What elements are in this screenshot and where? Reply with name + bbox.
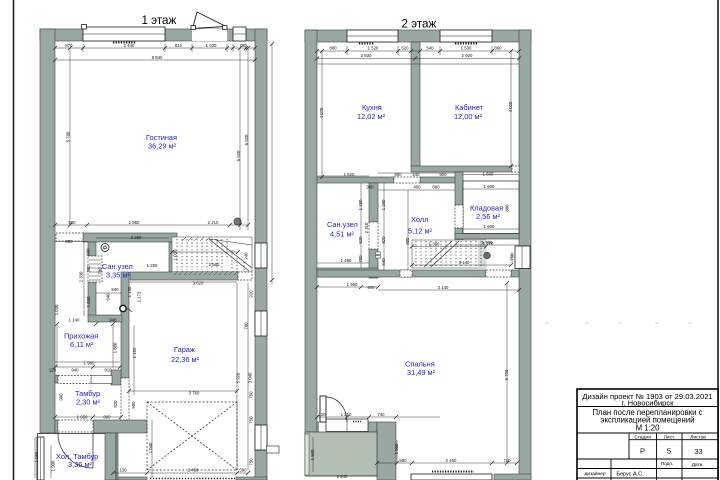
svg-text:2 930: 2 930 (361, 53, 372, 58)
svg-text:710: 710 (503, 458, 511, 463)
svg-text:1 030: 1 030 (86, 296, 91, 307)
svg-text:36,29 м²: 36,29 м² (148, 142, 177, 151)
svg-text:2 240: 2 240 (337, 474, 348, 479)
svg-text:820: 820 (381, 236, 386, 244)
svg-text:240: 240 (412, 172, 420, 177)
svg-text:1 250: 1 250 (147, 263, 158, 268)
svg-text:380: 380 (86, 265, 91, 273)
svg-text:Сан.узел: Сан.узел (327, 220, 358, 229)
svg-text:760: 760 (244, 322, 249, 330)
svg-text:820: 820 (358, 236, 363, 244)
svg-text:750: 750 (249, 391, 254, 399)
svg-text:6,11 м²: 6,11 м² (70, 340, 94, 349)
svg-text:3 620: 3 620 (193, 281, 204, 286)
svg-text:1 960: 1 960 (34, 451, 39, 462)
svg-text:2 460: 2 460 (446, 458, 457, 463)
svg-text:1 880: 1 880 (113, 342, 118, 353)
svg-text:900: 900 (439, 172, 447, 177)
svg-text:Берус А.С.: Берус А.С. (616, 472, 644, 478)
svg-text:1 770: 1 770 (483, 241, 494, 246)
svg-text:2 460: 2 460 (188, 468, 199, 473)
svg-text:540: 540 (426, 46, 434, 51)
svg-text:400: 400 (413, 185, 421, 190)
svg-text:800: 800 (505, 204, 510, 212)
svg-text:Кухня: Кухня (362, 103, 382, 112)
svg-text:640: 640 (381, 258, 386, 266)
svg-text:2,56 м²: 2,56 м² (476, 212, 501, 221)
svg-text:Подп.: Подп. (661, 461, 674, 467)
svg-text:3 140: 3 140 (459, 260, 470, 265)
svg-text:750: 750 (249, 458, 254, 466)
svg-text:2 330: 2 330 (79, 271, 84, 282)
svg-text:700: 700 (358, 255, 363, 263)
svg-text:900: 900 (131, 401, 136, 409)
svg-text:910: 910 (104, 368, 112, 373)
svg-text:4 070: 4 070 (319, 107, 324, 118)
svg-text:870: 870 (65, 43, 73, 48)
svg-text:1 920: 1 920 (344, 172, 355, 177)
svg-text:1 210: 1 210 (341, 412, 352, 417)
svg-text:3 760: 3 760 (189, 391, 200, 396)
svg-text:590: 590 (68, 220, 76, 225)
svg-text:1 500: 1 500 (394, 443, 399, 454)
svg-text:750: 750 (249, 416, 254, 424)
svg-text:1 150: 1 150 (127, 286, 132, 297)
svg-text:120: 120 (318, 412, 326, 417)
svg-text:1 600: 1 600 (484, 184, 495, 189)
svg-text:790: 790 (239, 43, 247, 48)
svg-text:3,36 м²: 3,36 м² (68, 460, 93, 469)
svg-text:940: 940 (109, 318, 117, 323)
svg-text:31,49 м²: 31,49 м² (407, 368, 436, 377)
svg-text:2 560: 2 560 (209, 262, 220, 267)
svg-text:880: 880 (329, 46, 337, 51)
svg-text:22,36 м²: 22,36 м² (171, 355, 200, 364)
svg-text:940: 940 (71, 368, 79, 373)
svg-text:1 030: 1 030 (54, 304, 59, 315)
svg-text:Холл: Холл (411, 215, 428, 224)
svg-text:2,30 м²: 2,30 м² (76, 398, 101, 407)
svg-text:2 960: 2 960 (129, 220, 140, 225)
svg-text:33: 33 (694, 447, 702, 456)
svg-text:дизайнер: дизайнер (584, 470, 605, 477)
svg-text:5 790: 5 790 (504, 369, 509, 380)
svg-text:3 140: 3 140 (438, 285, 449, 290)
svg-text:Дата: Дата (692, 462, 703, 468)
svg-text:2 192: 2 192 (132, 347, 137, 358)
svg-text:Кабинет: Кабинет (455, 103, 484, 112)
svg-text:810: 810 (175, 43, 183, 48)
svg-text:М 1:20: М 1:20 (636, 424, 660, 433)
svg-text:800: 800 (405, 237, 410, 245)
svg-text:1 040: 1 040 (148, 442, 153, 453)
svg-text:1 600: 1 600 (484, 224, 495, 229)
svg-text:580: 580 (399, 458, 407, 463)
svg-text:750: 750 (510, 253, 515, 261)
svg-text:6 920: 6 920 (236, 150, 241, 161)
svg-text:Лист: Лист (664, 435, 675, 441)
svg-text:1 960: 1 960 (347, 282, 358, 287)
svg-text:2 250: 2 250 (131, 235, 142, 240)
svg-text:2 920: 2 920 (462, 53, 473, 58)
svg-text:900: 900 (367, 285, 375, 290)
svg-text:1 173: 1 173 (137, 291, 142, 302)
svg-text:130: 130 (119, 468, 127, 473)
svg-text:5 920: 5 920 (236, 372, 241, 383)
svg-text:1 этаж: 1 этаж (142, 14, 177, 27)
svg-text:890: 890 (432, 185, 440, 190)
svg-text:5 940: 5 940 (152, 55, 163, 60)
svg-text:2 310: 2 310 (364, 222, 369, 233)
svg-text:1 960: 1 960 (84, 361, 95, 366)
svg-text:940: 940 (111, 287, 119, 292)
svg-text:120: 120 (49, 368, 57, 373)
svg-text:920: 920 (113, 400, 118, 408)
svg-text:900: 900 (59, 393, 64, 401)
svg-text:1 480: 1 480 (341, 258, 352, 263)
svg-text:520: 520 (401, 46, 409, 51)
svg-text:Стадия: Стадия (634, 435, 651, 441)
svg-text:1 600: 1 600 (483, 172, 494, 177)
svg-text:5 780: 5 780 (66, 131, 71, 142)
svg-text:2 210: 2 210 (208, 220, 219, 225)
svg-text:900: 900 (394, 172, 402, 177)
svg-text:Листов: Листов (690, 435, 706, 441)
svg-text:5,12 м²: 5,12 м² (408, 227, 433, 236)
svg-text:920: 920 (249, 290, 254, 298)
svg-text:240: 240 (244, 252, 249, 260)
svg-text:4,51 м²: 4,51 м² (330, 230, 355, 239)
svg-text:5: 5 (667, 447, 671, 456)
svg-text:1 280: 1 280 (381, 199, 386, 210)
svg-text:2 440: 2 440 (124, 43, 135, 48)
svg-text:1 900: 1 900 (51, 460, 56, 471)
svg-text:3 040: 3 040 (248, 372, 253, 383)
svg-text:12,02 м²: 12,02 м² (357, 112, 386, 121)
svg-text:590: 590 (239, 468, 247, 473)
svg-text:12,00 м²: 12,00 м² (454, 112, 483, 121)
svg-text:6 920: 6 920 (244, 134, 249, 145)
svg-text:640: 640 (106, 293, 111, 301)
svg-text:1 520: 1 520 (368, 46, 379, 51)
svg-text:3,35 м²: 3,35 м² (106, 271, 131, 280)
svg-text:Гараж: Гараж (174, 345, 195, 354)
svg-text:г. Новосибирск: г. Новосибирск (622, 399, 675, 408)
svg-text:1 280: 1 280 (358, 199, 363, 210)
svg-text:4 020: 4 020 (508, 101, 513, 112)
svg-text:1 030: 1 030 (206, 43, 217, 48)
svg-text:1 140: 1 140 (69, 318, 80, 323)
svg-text:1 530: 1 530 (461, 46, 472, 51)
svg-text:860: 860 (494, 46, 502, 51)
svg-text:980: 980 (366, 185, 374, 190)
svg-text:1 360: 1 360 (429, 242, 440, 247)
svg-text:740: 740 (377, 412, 385, 417)
svg-text:Р: Р (640, 447, 645, 456)
svg-text:600: 600 (86, 248, 91, 256)
svg-text:1 500: 1 500 (310, 449, 315, 460)
svg-text:2 этаж: 2 этаж (402, 18, 437, 31)
